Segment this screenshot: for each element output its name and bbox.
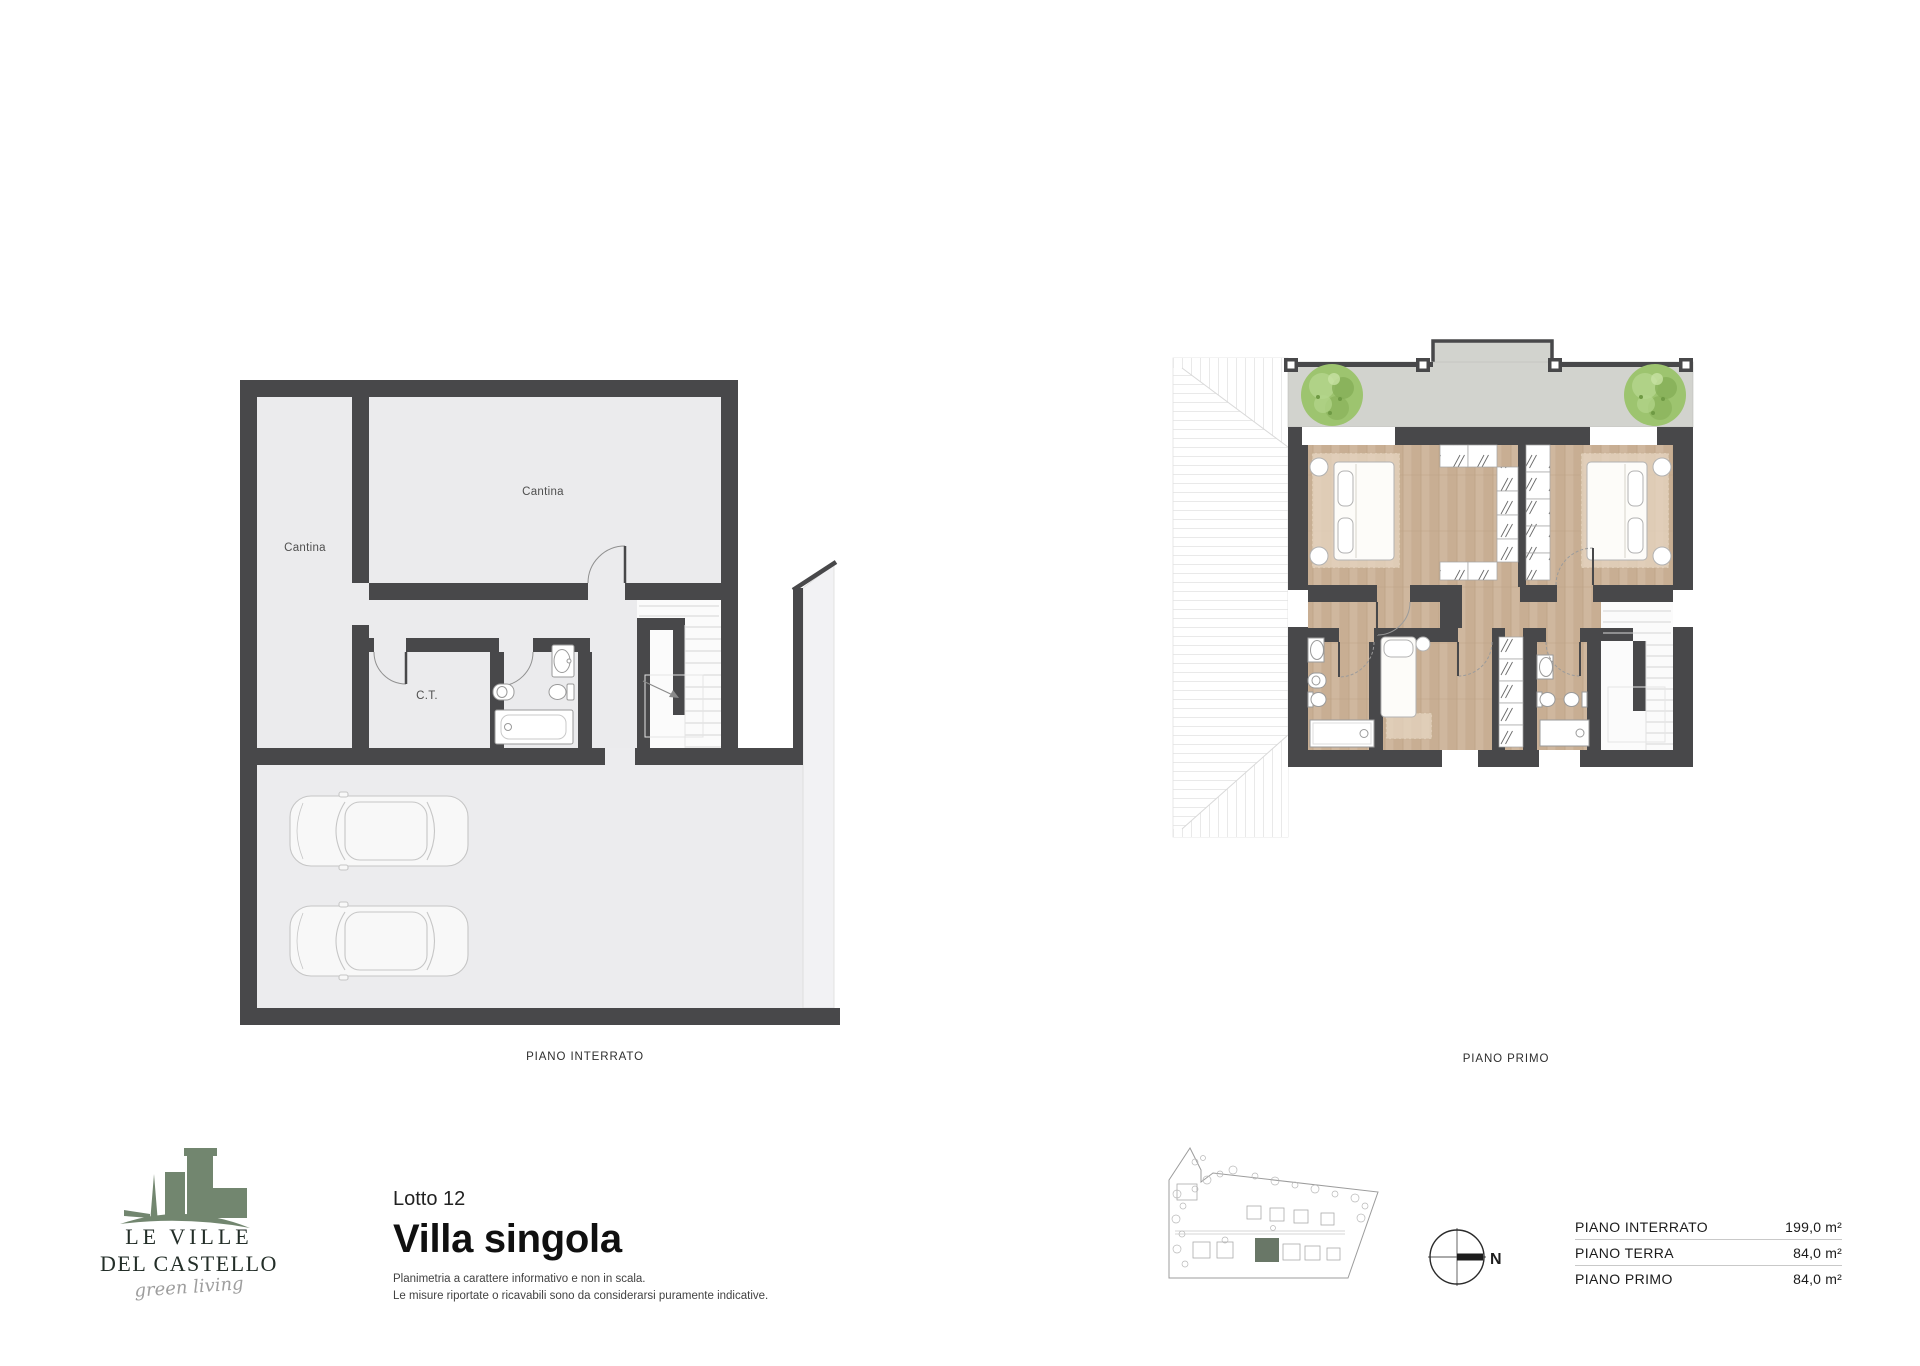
area-value: 84,0 m² (1793, 1245, 1842, 1261)
brand-name-line1: LE VILLE (86, 1224, 292, 1250)
bedroom-right-bed (1581, 453, 1671, 568)
caption-piano-primo: PIANO PRIMO (1463, 1053, 1550, 1065)
tree-icon (1301, 364, 1363, 426)
room-label-cantina-small: Cantina (284, 542, 326, 554)
roof-hatch (1173, 358, 1288, 837)
brand-text-block: LE VILLE DEL CASTELLO green living (86, 1224, 292, 1298)
disclaimer-line1: Planimetria a carattere informativo e no… (393, 1271, 768, 1288)
area-table: PIANO INTERRATO 199,0 m² PIANO TERRA 84,… (1575, 1214, 1842, 1291)
disclaimer-line2: Le misure riportate o ricavabili sono da… (393, 1288, 768, 1305)
area-value: 199,0 m² (1785, 1219, 1842, 1235)
lot-title-block: Lotto 12 Villa singola Planimetria a car… (393, 1188, 768, 1304)
area-row-terra: PIANO TERRA 84,0 m² (1575, 1240, 1842, 1266)
area-label: PIANO INTERRATO (1575, 1219, 1708, 1235)
bedroom-left-bed (1310, 453, 1400, 568)
area-row-interrato: PIANO INTERRATO 199,0 m² (1575, 1214, 1842, 1240)
floor-plan-primo-drawing (1160, 335, 1705, 870)
caption-piano-interrato: PIANO INTERRATO (526, 1051, 644, 1063)
site-plan-thumbnail (1165, 1144, 1383, 1284)
car-icon (290, 792, 468, 870)
compass-north-icon: N (1424, 1226, 1516, 1290)
garage-door-opening (605, 748, 635, 765)
plan-sheet: Cantina Cantina C.T. PIANO INTERRATO (0, 0, 1920, 1366)
area-label: PIANO PRIMO (1575, 1271, 1673, 1287)
floor-plan-interrato-drawing (240, 375, 850, 1030)
car-icon (290, 902, 468, 980)
highlighted-lot-12 (1255, 1238, 1279, 1262)
area-value: 84,0 m² (1793, 1271, 1842, 1287)
room-label-cantina-large: Cantina (522, 486, 564, 498)
compass-north-label: N (1490, 1251, 1502, 1268)
lot-number: Lotto 12 (393, 1188, 768, 1211)
disclaimer: Planimetria a carattere informativo e no… (393, 1271, 768, 1304)
lot-title: Villa singola (393, 1217, 768, 1262)
area-row-primo: PIANO PRIMO 84,0 m² (1575, 1266, 1842, 1291)
area-label: PIANO TERRA (1575, 1245, 1674, 1261)
room-label-ct: C.T. (416, 690, 438, 702)
tree-icon (1624, 364, 1686, 426)
